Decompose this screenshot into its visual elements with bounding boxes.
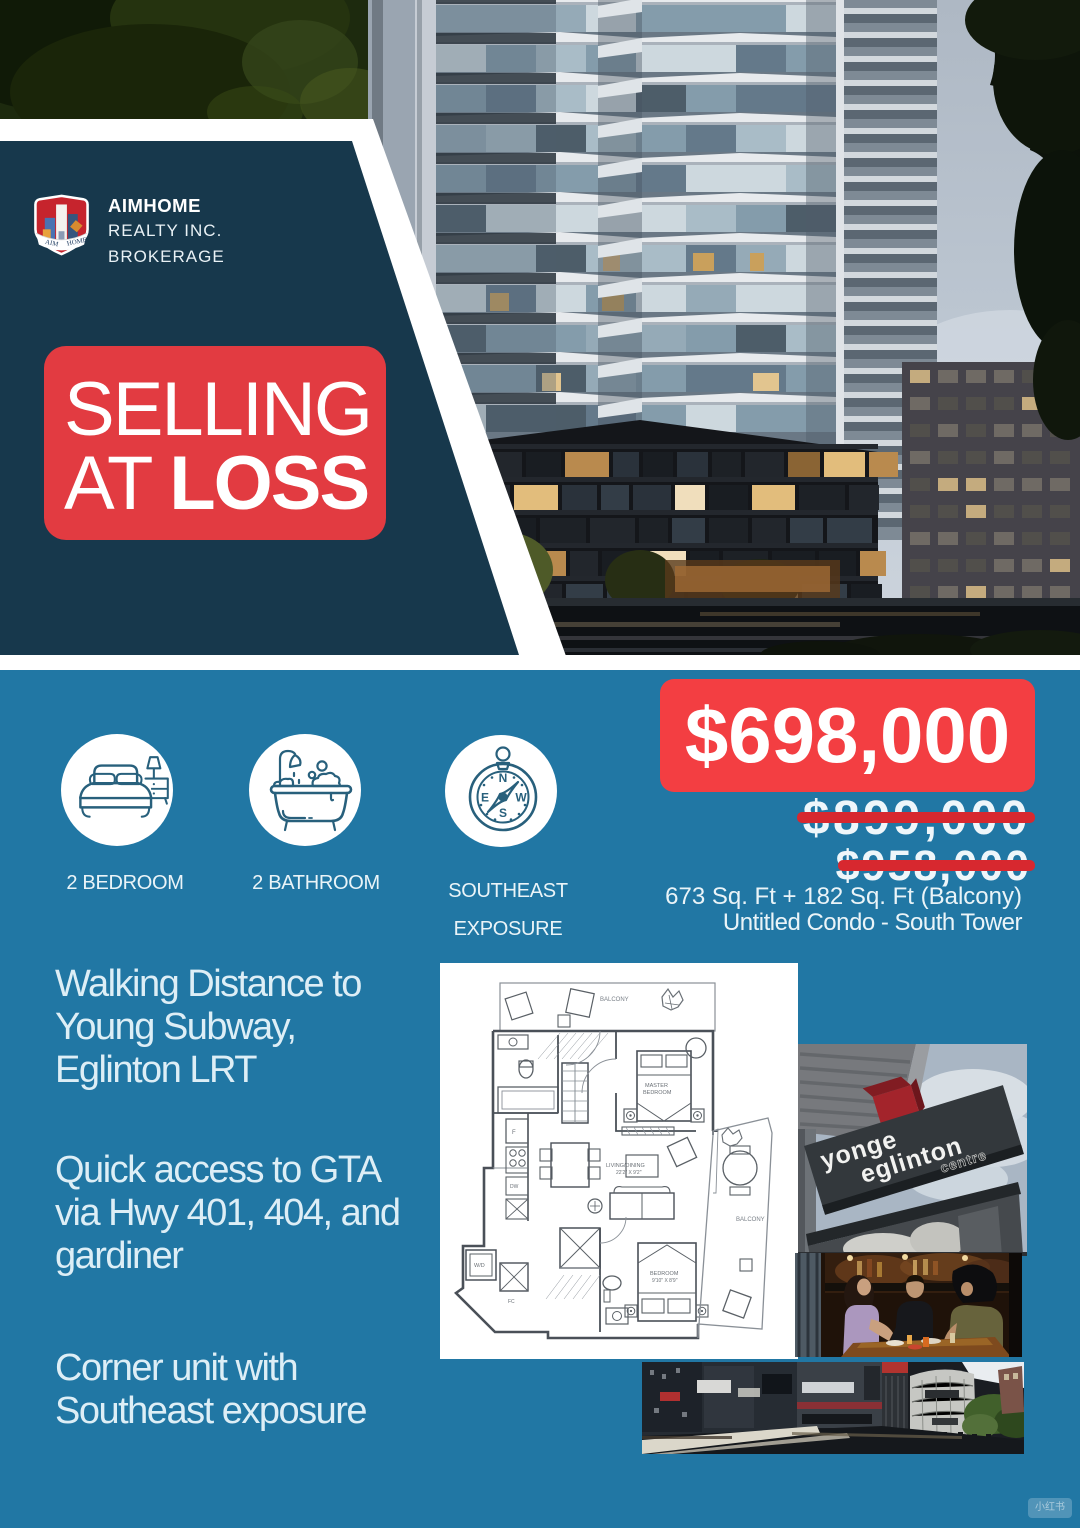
svg-text:BEDROOM: BEDROOM bbox=[643, 1090, 672, 1096]
svg-text:E: E bbox=[481, 791, 489, 805]
svg-text:22'2" X 9'2": 22'2" X 9'2" bbox=[616, 1170, 642, 1176]
svg-text:W/D: W/D bbox=[474, 1263, 485, 1269]
svg-text:S: S bbox=[499, 806, 507, 820]
svg-text:MASTER: MASTER bbox=[645, 1083, 668, 1089]
svg-text:BALCONY: BALCONY bbox=[736, 1217, 765, 1223]
svg-text:W: W bbox=[515, 791, 527, 805]
svg-text:BEDROOM: BEDROOM bbox=[650, 1271, 679, 1277]
svg-text:9'10" X 8'9": 9'10" X 8'9" bbox=[652, 1278, 678, 1284]
svg-text:BALCONY: BALCONY bbox=[600, 997, 629, 1003]
svg-text:FC: FC bbox=[508, 1299, 515, 1305]
svg-text:DW: DW bbox=[510, 1184, 519, 1190]
svg-text:N: N bbox=[499, 771, 508, 785]
svg-text:F: F bbox=[512, 1130, 516, 1136]
